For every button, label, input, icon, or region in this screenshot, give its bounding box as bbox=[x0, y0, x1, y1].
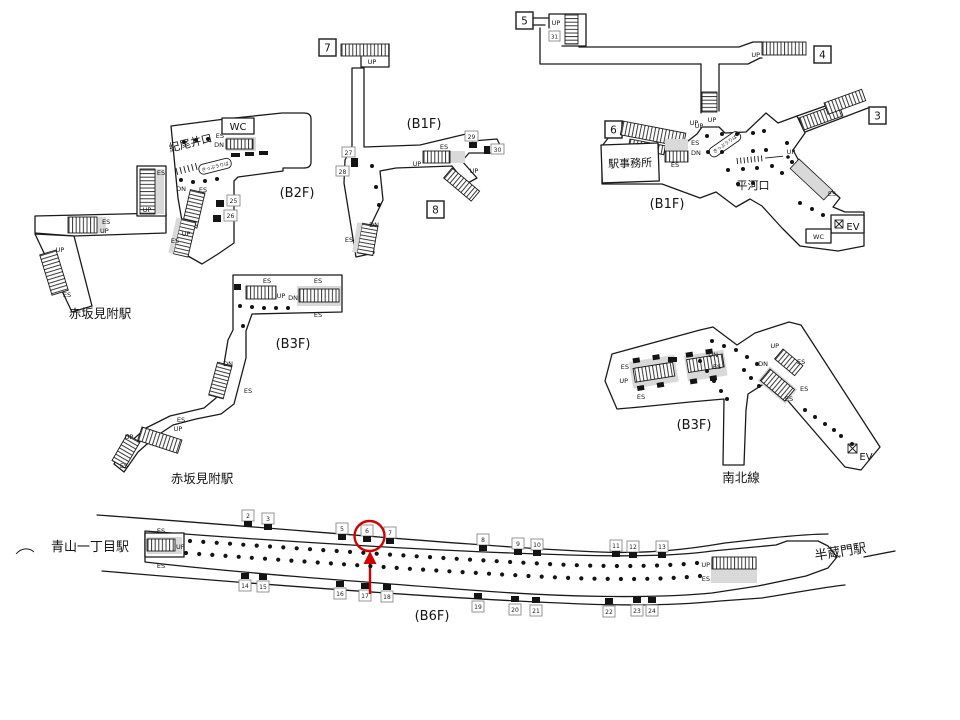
up-label: UP bbox=[552, 19, 561, 27]
up-label: UP bbox=[695, 122, 704, 130]
es-label: ES bbox=[199, 186, 207, 194]
es-label: ES bbox=[345, 236, 353, 244]
svg-text:9: 9 bbox=[516, 541, 520, 548]
up-label: UP bbox=[100, 227, 109, 235]
svg-text:12: 12 bbox=[629, 544, 637, 551]
svg-text:17: 17 bbox=[361, 593, 369, 600]
svg-text:19: 19 bbox=[474, 604, 482, 611]
platform-number-9: 9 bbox=[512, 538, 524, 555]
floor-label-b2f: (B2F) bbox=[280, 186, 315, 201]
svg-text:6: 6 bbox=[610, 125, 617, 137]
svg-text:13: 13 bbox=[658, 544, 666, 551]
svg-text:31: 31 bbox=[551, 35, 558, 41]
platform-number-14: 14 bbox=[239, 573, 251, 591]
svg-text:16: 16 bbox=[336, 591, 344, 598]
es-label: ES bbox=[157, 527, 165, 535]
up-label: UP bbox=[787, 148, 796, 156]
platform-number-16: 16 bbox=[334, 581, 346, 599]
es-label: ES bbox=[120, 462, 128, 470]
es-label: ES bbox=[157, 169, 165, 177]
es-label: ES bbox=[713, 363, 721, 371]
marker-26: 26 bbox=[224, 210, 237, 221]
wc-label: WC bbox=[813, 233, 824, 241]
dn-label: DN bbox=[691, 149, 701, 157]
exit-6: 6 bbox=[605, 121, 622, 138]
floor-b3f-left: UP DN ES ES ES (B3F) DN ES ES UP UP ES 赤… bbox=[112, 275, 342, 486]
es-label: ES bbox=[216, 132, 224, 140]
svg-text:7: 7 bbox=[388, 530, 392, 537]
up-label: UP bbox=[619, 377, 628, 385]
es-label: ES bbox=[702, 575, 710, 583]
station-office: 駅事務所 bbox=[601, 143, 659, 183]
floor-label-b1f-right: (B1F) bbox=[650, 197, 685, 212]
es-label: ES bbox=[621, 363, 629, 371]
dn-label: DN bbox=[223, 360, 233, 368]
svg-text:28: 28 bbox=[339, 169, 347, 176]
up-label: UP bbox=[56, 246, 65, 254]
up-label: UP bbox=[174, 425, 183, 433]
exit-4: 4 bbox=[814, 46, 831, 63]
dn-label: DN bbox=[214, 141, 224, 149]
svg-text:20: 20 bbox=[511, 607, 519, 614]
es-label: ES bbox=[671, 161, 679, 169]
floor-b1f-right: 5 UP 31 UP 4 UP UP 6 UP 駅事務所 bbox=[516, 12, 886, 251]
platform-number-21: 21 bbox=[530, 597, 542, 616]
up-label: UP bbox=[277, 292, 286, 300]
platform-number-15: 15 bbox=[257, 574, 269, 592]
svg-text:8: 8 bbox=[481, 537, 485, 544]
dn-label: DN bbox=[288, 294, 298, 302]
es-label: ES bbox=[691, 139, 699, 147]
es-label: ES bbox=[244, 387, 252, 395]
es-label: ES bbox=[828, 190, 836, 198]
floor-label-b1f-left: (B1F) bbox=[407, 117, 442, 132]
dn-label: DN bbox=[176, 185, 186, 193]
up-label: UP bbox=[413, 160, 422, 168]
svg-text:5: 5 bbox=[521, 16, 528, 28]
es-label: ES bbox=[171, 237, 179, 245]
es-label: ES bbox=[177, 416, 185, 424]
platform-number-18: 18 bbox=[381, 584, 393, 602]
namboku-line-label: 南北線 bbox=[722, 470, 760, 485]
exit-8: 8 bbox=[427, 201, 444, 218]
up-label: UP bbox=[470, 167, 479, 175]
svg-text:14: 14 bbox=[241, 583, 249, 590]
svg-text:2: 2 bbox=[246, 513, 250, 520]
up-label: UP bbox=[708, 116, 717, 124]
station-label-akasaka-mitsuke: 赤坂見附駅 bbox=[69, 306, 132, 321]
ev-label: EV bbox=[859, 452, 872, 463]
platform-number-7: 7 bbox=[384, 527, 396, 544]
es-label: ES bbox=[157, 562, 165, 570]
floor-label-b3f-left: (B3F) bbox=[276, 337, 311, 352]
svg-text:4: 4 bbox=[819, 50, 826, 62]
svg-text:25: 25 bbox=[230, 198, 238, 205]
floor-b1f-left: UP 7 ES UP UP 8 DN ES 27 28 29 bbox=[319, 39, 504, 257]
marker-31: 31 bbox=[549, 31, 560, 41]
es-label: ES bbox=[800, 385, 808, 393]
floor-b6f-platform: ES UP ES UP ES 2 3 5 6 7 8 9 10 11 12 13… bbox=[16, 510, 895, 624]
svg-text:23: 23 bbox=[633, 608, 641, 615]
station-label-aoyama-itchome: 青山一丁目駅 bbox=[51, 540, 129, 555]
es-label: ES bbox=[263, 277, 271, 285]
svg-text:10: 10 bbox=[533, 542, 541, 549]
floor-label-b6f: (B6F) bbox=[415, 609, 450, 624]
station-office-label: 駅事務所 bbox=[608, 155, 652, 171]
svg-text:3: 3 bbox=[266, 516, 270, 523]
station-label-akasaka-mitsuke-lower: 赤坂見附駅 bbox=[171, 471, 234, 486]
es-label: ES bbox=[797, 358, 805, 366]
marker-27: 27 bbox=[342, 147, 355, 157]
platform-number-23: 23 bbox=[631, 597, 643, 616]
svg-text:3: 3 bbox=[874, 111, 881, 123]
up-label: UP bbox=[770, 342, 779, 350]
svg-text:8: 8 bbox=[432, 205, 439, 217]
up-label: UP bbox=[125, 433, 134, 441]
svg-text:29: 29 bbox=[468, 134, 476, 141]
station-map-svg: ES UP ES UP UP ES 赤坂見附駅 WC ES DN 紀尾井口 きっ… bbox=[0, 0, 960, 720]
marker-30: 30 bbox=[491, 144, 504, 154]
svg-text:22: 22 bbox=[605, 609, 613, 616]
platform-number-24: 24 bbox=[646, 597, 658, 616]
es-label: ES bbox=[314, 277, 322, 285]
floor-b2f: WC ES DN 紀尾井口 きっぷうりば DN ES UP ES 25 bbox=[167, 113, 314, 264]
exit-7: 7 bbox=[319, 39, 336, 56]
platform-number-19: 19 bbox=[472, 593, 484, 612]
exit-3: 3 bbox=[869, 107, 886, 124]
dn-label: DN bbox=[369, 221, 379, 229]
platform-number-11: 11 bbox=[610, 540, 622, 557]
svg-text:26: 26 bbox=[227, 213, 235, 220]
platform-number-22: 22 bbox=[603, 598, 615, 617]
up-label: UP bbox=[751, 51, 760, 59]
corridor-akasaka-upper: ES UP ES UP UP ES 赤坂見附駅 bbox=[35, 166, 166, 321]
marker-28: 28 bbox=[336, 166, 349, 176]
up-label: UP bbox=[182, 230, 191, 238]
es-label: ES bbox=[785, 395, 793, 403]
svg-text:15: 15 bbox=[259, 584, 267, 591]
svg-text:24: 24 bbox=[648, 608, 656, 615]
svg-text:21: 21 bbox=[532, 608, 540, 615]
es-label: ES bbox=[440, 143, 448, 151]
platform-number-5: 5 bbox=[336, 523, 348, 540]
wc-label: WC bbox=[230, 122, 247, 133]
dn-label: DN bbox=[758, 360, 768, 368]
es-label: ES bbox=[314, 311, 322, 319]
platform-number-6-highlighted: 6 bbox=[361, 525, 373, 542]
svg-text:11: 11 bbox=[612, 543, 620, 550]
floor-b3f-right: ES UP ES DN ES UP ES DN ES ES EV ( bbox=[605, 322, 880, 485]
up-label: UP bbox=[143, 206, 152, 214]
svg-text:5: 5 bbox=[340, 526, 344, 533]
station-floor-map: ES UP ES UP UP ES 赤坂見附駅 WC ES DN 紀尾井口 きっ… bbox=[0, 0, 960, 720]
svg-text:6: 6 bbox=[365, 528, 369, 535]
up-label: UP bbox=[176, 543, 185, 551]
dn-label: DN bbox=[708, 351, 718, 359]
up-label: UP bbox=[701, 561, 710, 569]
svg-text:27: 27 bbox=[345, 150, 353, 157]
svg-text:7: 7 bbox=[324, 43, 331, 55]
marker-29: 29 bbox=[465, 131, 478, 141]
ev-label: EV bbox=[846, 222, 859, 233]
es-label: ES bbox=[637, 393, 645, 401]
es-label: ES bbox=[63, 291, 71, 299]
svg-text:30: 30 bbox=[494, 147, 502, 154]
platform-number-20: 20 bbox=[509, 596, 521, 615]
floor-label-b3f-right: (B3F) bbox=[677, 418, 712, 433]
es-label: ES bbox=[102, 218, 110, 226]
hirakawa-gate-label: 平河口 bbox=[737, 179, 770, 192]
exit-5: 5 bbox=[516, 12, 533, 29]
platform-number-8: 8 bbox=[477, 534, 489, 551]
marker-25: 25 bbox=[227, 195, 240, 206]
svg-text:18: 18 bbox=[383, 594, 391, 601]
up-label: UP bbox=[368, 58, 377, 66]
platform-number-2: 2 bbox=[242, 510, 254, 527]
